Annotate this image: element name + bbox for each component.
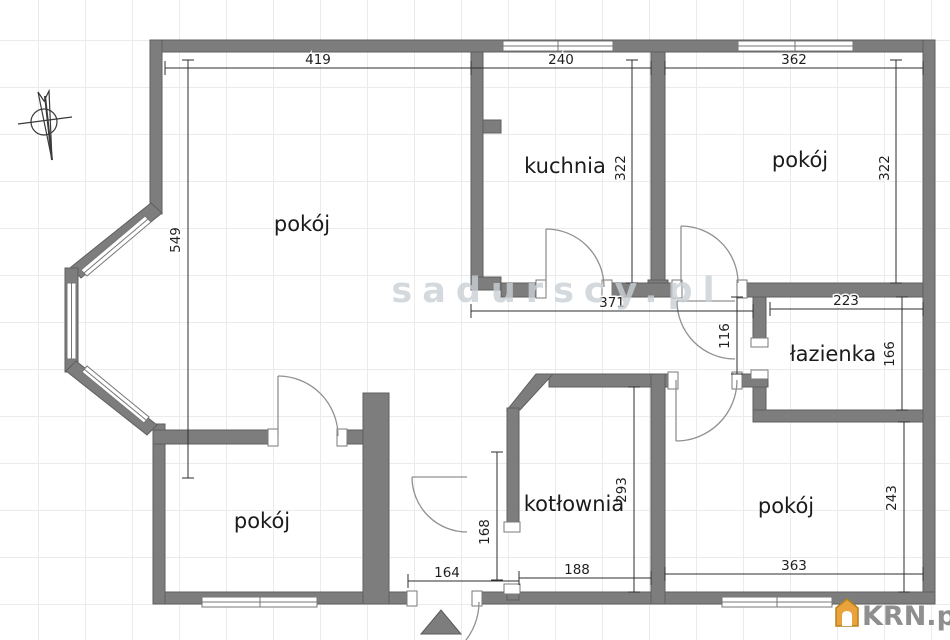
- room-label-bedroom-br: pokój: [758, 494, 814, 518]
- floor-plan-drawing: 419 240 362 549 322 322 371 223 116 166 …: [0, 0, 950, 640]
- window-bay-lower: [82, 366, 149, 423]
- dimension-label: 116: [717, 323, 733, 349]
- entrance-arrow: [421, 610, 461, 634]
- door-jamb: [751, 338, 768, 347]
- dimension-line: [182, 60, 194, 478]
- watermark: sadurscy.pl: [391, 271, 724, 311]
- room-labels: pokój kuchnia pokój łazienka kotłownia p…: [234, 148, 876, 533]
- walls: [65, 40, 935, 604]
- window-bedroom-bl: [202, 597, 317, 607]
- windows: [67, 41, 853, 607]
- door-jamb: [407, 591, 417, 606]
- wall-kitchen-divider: [651, 52, 665, 290]
- dimension-label: 322: [613, 155, 629, 181]
- dimension-label: 188: [564, 562, 590, 578]
- dimension-line: [408, 574, 519, 588]
- door-arc-bedroom-bl: [278, 376, 338, 436]
- door-arc-bedroom-br: [676, 380, 737, 441]
- door-arc-vestibule: [412, 477, 467, 532]
- wall-bay-lower-diagonal: [66, 361, 157, 435]
- room-label-kitchen: kuchnia: [524, 154, 606, 178]
- wall-left-upper: [150, 40, 162, 214]
- dimension-line: [491, 452, 503, 580]
- dimension-label: 166: [882, 341, 898, 367]
- window-bay-upper: [81, 216, 151, 276]
- window-bedroom-tr: [738, 41, 853, 51]
- dimension-label: 363: [781, 558, 807, 574]
- wall-left-lower: [153, 424, 165, 604]
- wall-kitchen-left: [471, 52, 483, 290]
- wall-vestibule-left: [363, 393, 389, 604]
- window-bay-middle: [67, 283, 76, 359]
- logo-text: KRN.pl: [862, 601, 950, 632]
- wall-bedroom-bl-top-left: [153, 430, 268, 444]
- house-icon-door: [842, 611, 852, 626]
- door-jamb: [504, 522, 520, 532]
- window-bedroom-br: [722, 597, 832, 607]
- dimension-label: 243: [884, 485, 900, 511]
- wall-boiler-left-upper: [507, 408, 519, 526]
- dimension-label: 419: [305, 52, 331, 68]
- door-jamb: [751, 370, 768, 379]
- dimension-label: 362: [781, 52, 807, 68]
- dimension-label: 164: [434, 565, 460, 581]
- wall-kitchen-step: [483, 120, 501, 133]
- wall-bathroom-left-upper: [753, 297, 766, 342]
- room-label-bathroom: łazienka: [790, 342, 877, 366]
- door-jamb: [504, 584, 520, 594]
- room-label-bedroom-tr: pokój: [772, 148, 828, 172]
- dimension-label: 322: [877, 155, 893, 181]
- door-jamb: [268, 429, 278, 446]
- dimension-label: 168: [477, 519, 493, 545]
- wall-right: [923, 40, 935, 604]
- dimension-label: 549: [168, 227, 184, 253]
- wall-bathroom-bottom: [753, 410, 923, 422]
- room-label-bedroom-bl: pokój: [234, 509, 290, 533]
- door-jamb: [472, 591, 482, 606]
- room-label-boiler: kotłownia: [524, 492, 625, 516]
- dimension-label: 223: [833, 293, 859, 309]
- dimension-label: 240: [548, 52, 574, 68]
- floor-plan: 419 240 362 549 322 322 371 223 116 166 …: [0, 0, 950, 640]
- north-arrow: [18, 91, 72, 160]
- wall-boiler-right: [651, 374, 665, 604]
- wall-boiler-diagonal: [507, 374, 553, 410]
- window-kitchen: [503, 41, 613, 51]
- krn-logo: KRN.pl: [836, 599, 950, 632]
- room-label-living: pokój: [274, 212, 330, 236]
